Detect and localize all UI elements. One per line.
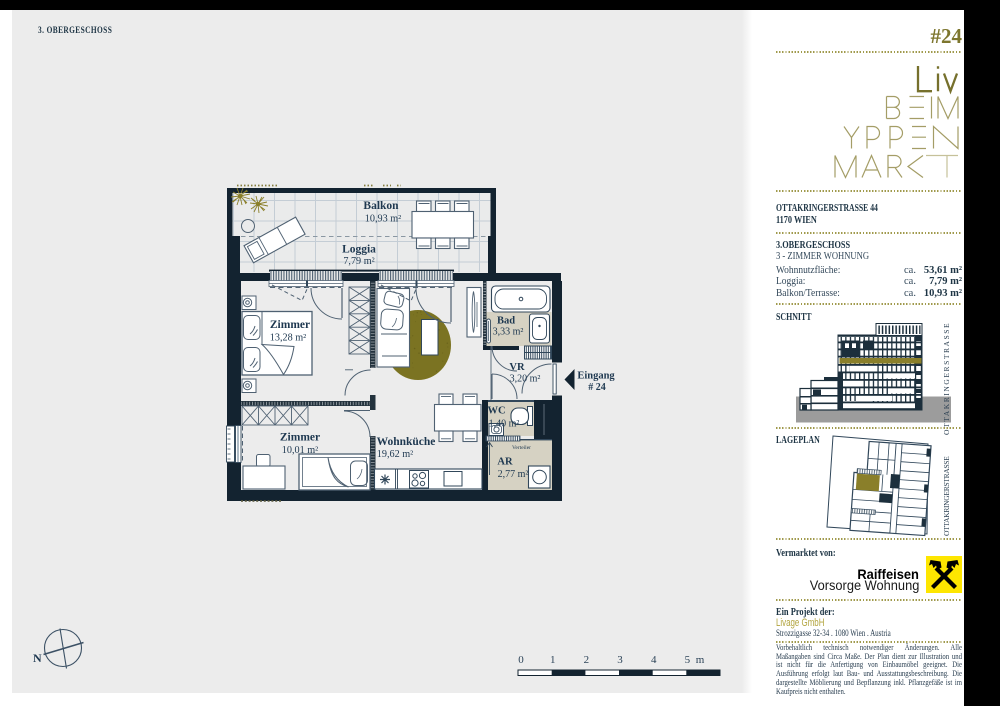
svg-text:Balkon: Balkon <box>363 200 399 212</box>
svg-text:Bad: Bad <box>497 316 515 327</box>
svg-text:OTTAKRINGERSTRASSE: OTTAKRINGERSTRASSE <box>942 323 951 435</box>
svg-text:19,62 m²: 19,62 m² <box>377 449 413 460</box>
svg-text:Loggia: Loggia <box>342 244 376 256</box>
svg-text:3,20 m²: 3,20 m² <box>510 374 541 385</box>
svg-text:1,40 m²: 1,40 m² <box>489 419 520 430</box>
svg-text:0: 0 <box>518 654 524 666</box>
svg-text:2: 2 <box>584 654 590 666</box>
svg-text:VR: VR <box>509 362 525 373</box>
svg-text:3,33 m²: 3,33 m² <box>493 327 524 338</box>
svg-text:Verteiler: Verteiler <box>512 445 531 451</box>
svg-text:4: 4 <box>651 654 657 666</box>
svg-text:2,77 m²: 2,77 m² <box>498 469 529 480</box>
svg-text:WC: WC <box>487 406 505 417</box>
svg-text:13,28 m²: 13,28 m² <box>270 333 306 344</box>
svg-text:Wohnküche: Wohnküche <box>377 436 436 448</box>
svg-text:10,93 m²: 10,93 m² <box>365 214 401 225</box>
svg-text:7,79 m²: 7,79 m² <box>343 256 374 267</box>
svg-text:Zimmer: Zimmer <box>280 432 320 444</box>
svg-text:N: N <box>33 651 42 665</box>
svg-text:5: 5 <box>685 654 691 666</box>
svg-text:Zimmer: Zimmer <box>270 319 310 331</box>
svg-text:m: m <box>696 654 705 666</box>
svg-text:# 24: # 24 <box>588 382 606 393</box>
svg-text:Eingang: Eingang <box>577 371 615 382</box>
svg-text:3: 3 <box>617 654 623 666</box>
svg-text:OTTAKRINGERSTRASSE: OTTAKRINGERSTRASSE <box>942 456 951 536</box>
svg-text:AR: AR <box>497 457 513 468</box>
svg-text:10,01 m²: 10,01 m² <box>282 445 318 456</box>
svg-text:1: 1 <box>550 654 556 666</box>
